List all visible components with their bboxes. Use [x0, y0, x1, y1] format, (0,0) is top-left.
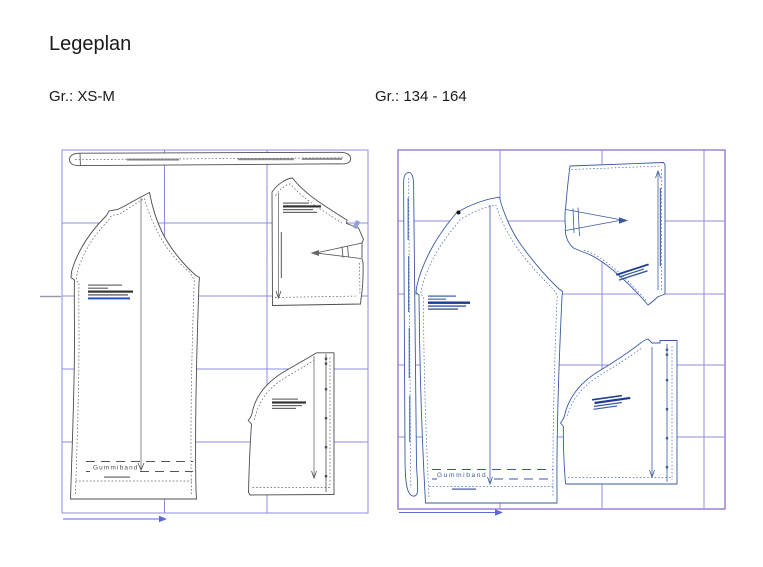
shoulder-point-dot — [457, 211, 461, 215]
left-yoke-piece — [272, 178, 364, 306]
right-sleeve-piece — [561, 339, 678, 484]
gummiband-label-left: Gummiband — [93, 465, 139, 472]
piece-label-text — [302, 158, 342, 160]
right-width-arrow — [399, 509, 503, 515]
piece-label-text — [452, 489, 476, 490]
left-bodice-piece: Gummiband — [71, 193, 200, 500]
gummiband-label-right: Gummiband — [437, 472, 487, 479]
right-yoke-piece — [565, 163, 665, 306]
legeplan-page: Legeplan Gr.: XS-M Gr.: 134 - 164 — [0, 0, 763, 567]
piece-label-text — [238, 158, 294, 160]
grainline-text — [281, 232, 282, 278]
piece-label-text — [104, 477, 130, 478]
layout-plan-canvas: Gummiband — [0, 0, 763, 567]
left-strip-piece — [69, 152, 350, 165]
right-bodice-piece: Gummiband — [416, 197, 563, 503]
piece-label-text — [127, 159, 179, 161]
left-sleeve-piece — [248, 353, 334, 495]
grainline-text — [660, 188, 661, 266]
left-width-arrow — [63, 516, 167, 522]
